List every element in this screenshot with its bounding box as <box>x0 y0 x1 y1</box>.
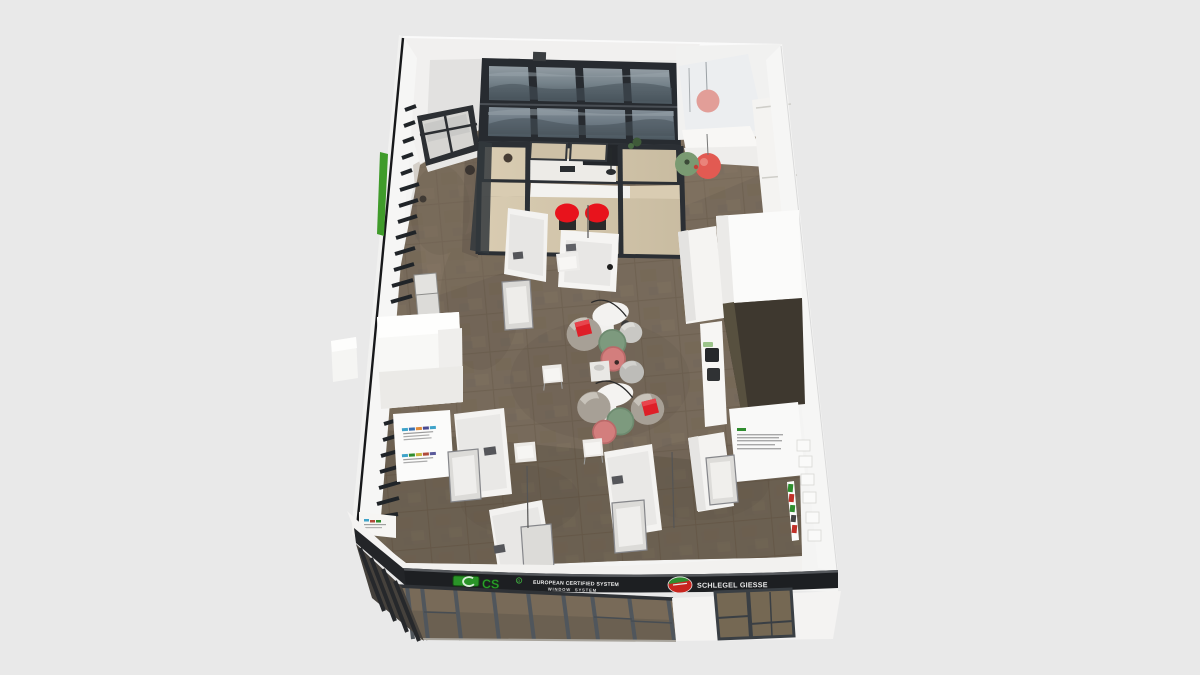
svg-text:R: R <box>517 578 520 583</box>
